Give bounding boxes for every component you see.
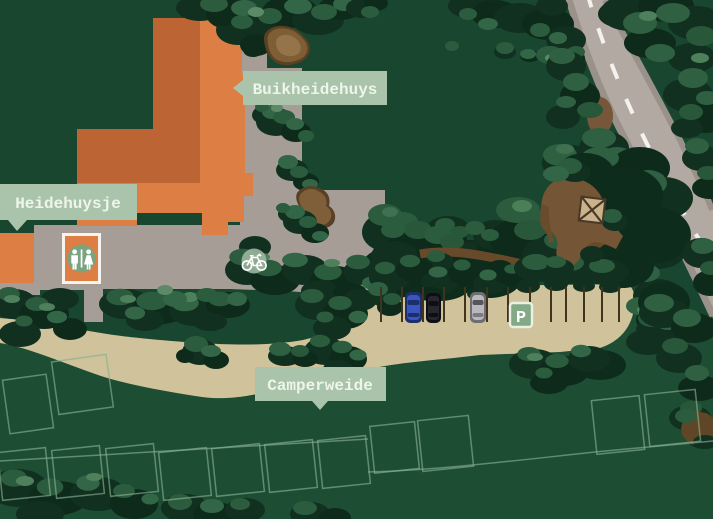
svg-text:Camperweide: Camperweide bbox=[267, 377, 373, 395]
svg-text:P: P bbox=[516, 309, 526, 328]
svg-text:Buikheidehuys: Buikheidehuys bbox=[253, 81, 378, 99]
svg-text:Heidehuysje: Heidehuysje bbox=[15, 195, 121, 213]
